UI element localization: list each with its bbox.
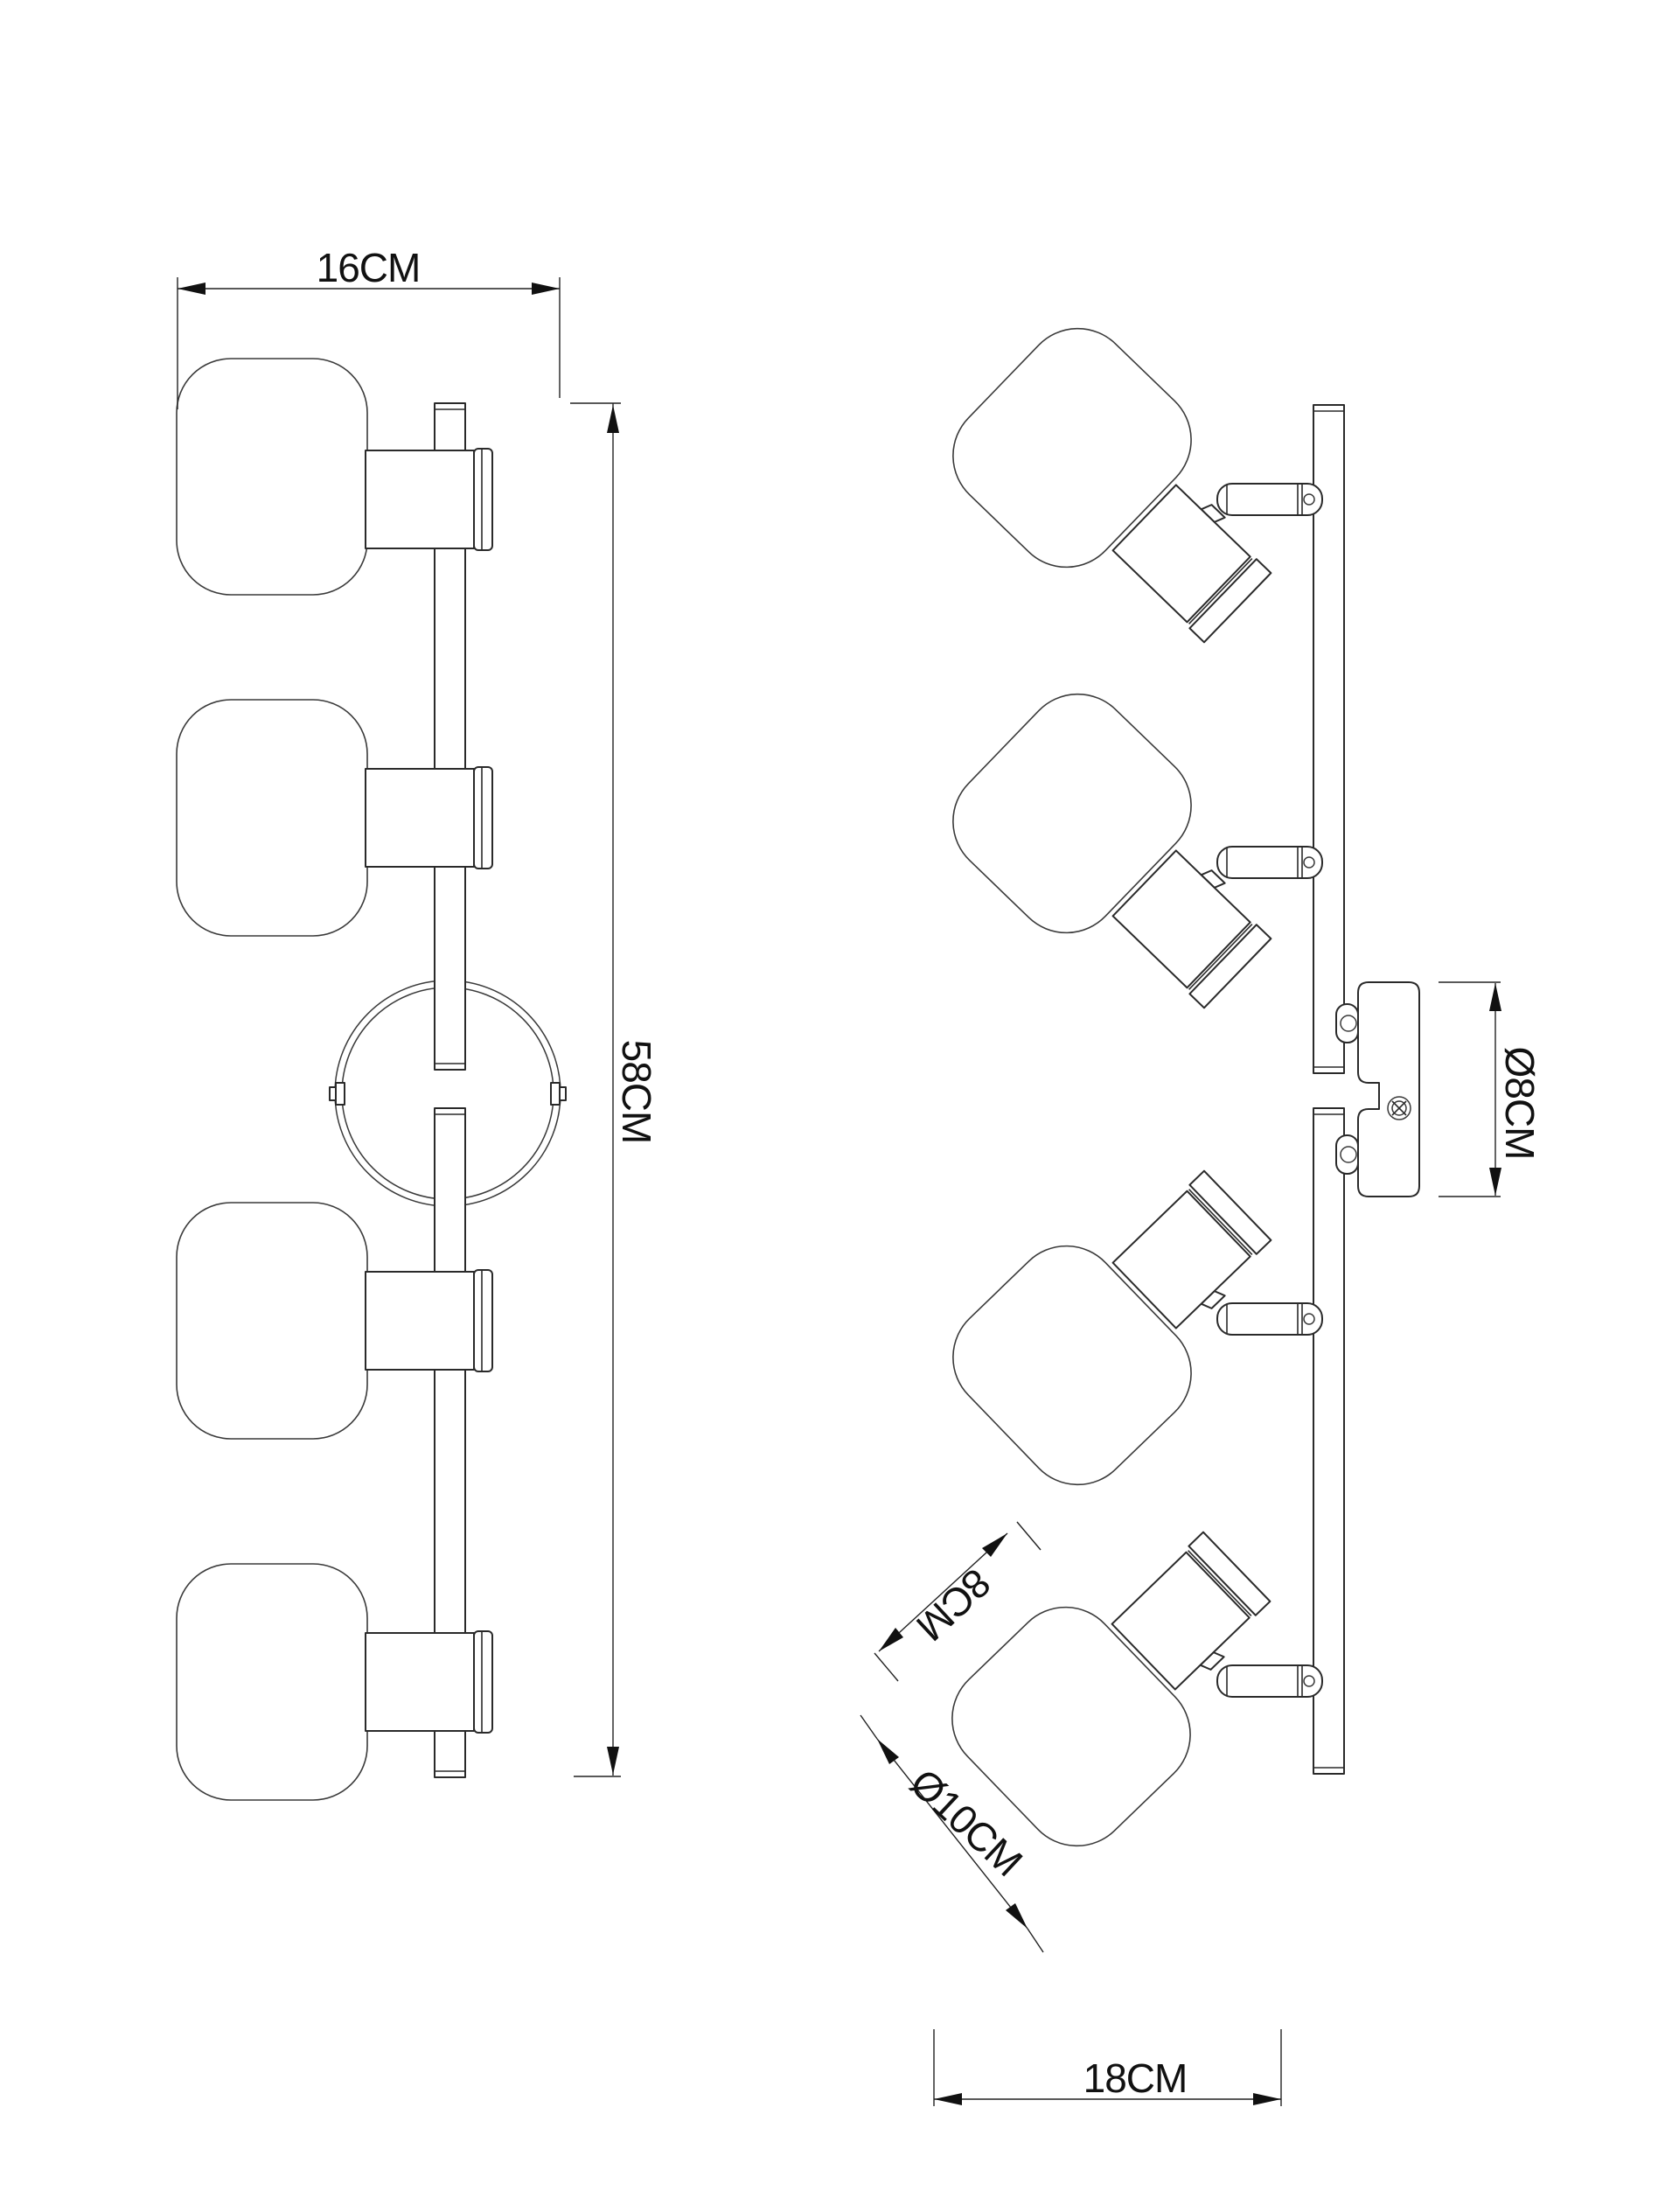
pivot-arm bbox=[1217, 484, 1322, 515]
lamp-socket bbox=[366, 1631, 492, 1733]
canopy-plate bbox=[1358, 982, 1419, 1197]
mount-knob-left bbox=[330, 1083, 345, 1105]
dimension-label-16cm: 16CM bbox=[317, 245, 421, 290]
lamp-shade bbox=[177, 700, 367, 936]
side-rail bbox=[1313, 405, 1344, 1774]
canopy-lug bbox=[1336, 1004, 1358, 1043]
side-view: Ø8CM 8CM Ø10CM 18CM bbox=[860, 306, 1543, 2106]
dimension-label-18cm: 18CM bbox=[1083, 2055, 1188, 2101]
lamp-socket bbox=[366, 449, 492, 550]
spotlight-technical-drawing: 16CM 58CM bbox=[0, 0, 1679, 2212]
pivot-arm bbox=[1217, 1303, 1322, 1335]
mount-knob-right bbox=[551, 1083, 566, 1105]
lamp-shade bbox=[177, 359, 367, 595]
lamp-socket bbox=[366, 767, 492, 869]
dimension-label-58cm: 58CM bbox=[614, 1040, 659, 1144]
dimension-label-8cm: 8CM bbox=[909, 1560, 1000, 1650]
dimension-side-depth: 18CM bbox=[934, 2029, 1281, 2106]
technical-drawing-page: 16CM 58CM bbox=[0, 0, 1679, 2212]
wall-canopy bbox=[1336, 982, 1419, 1197]
front-view: 16CM 58CM bbox=[177, 245, 659, 1800]
dimension-label-d8cm: Ø8CM bbox=[1497, 1047, 1543, 1160]
canopy-lug bbox=[1336, 1135, 1358, 1174]
lamp-shade bbox=[177, 1203, 367, 1439]
dimension-front-height: 58CM bbox=[570, 403, 659, 1776]
track-bar bbox=[435, 403, 465, 1777]
pivot-arm bbox=[1217, 847, 1322, 878]
lamp-shade bbox=[177, 1564, 367, 1800]
dimension-canopy-diameter: Ø8CM bbox=[1439, 982, 1543, 1197]
lamp-socket bbox=[366, 1270, 492, 1371]
pivot-arm bbox=[1217, 1665, 1322, 1697]
